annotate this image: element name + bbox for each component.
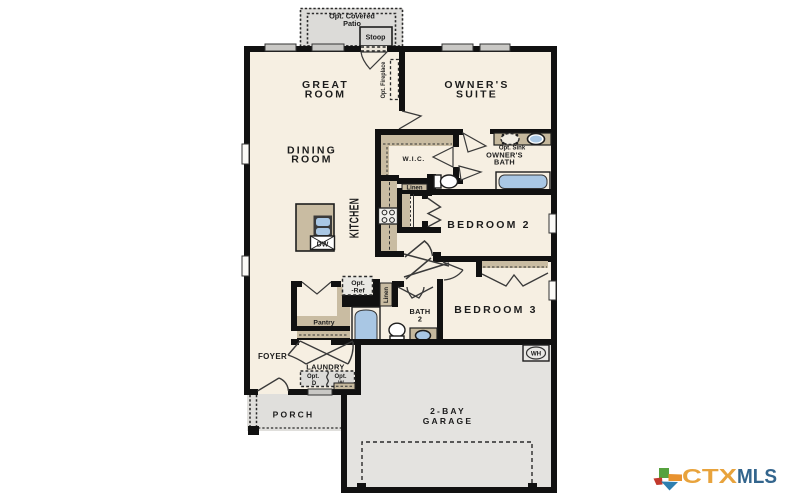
svg-text:GARAGE: GARAGE (423, 416, 474, 426)
svg-text:KITCHEN: KITCHEN (348, 198, 362, 238)
svg-text:W.I.C.: W.I.C. (403, 156, 426, 163)
svg-text:Opt.: Opt. (307, 374, 319, 380)
svg-text:ROOM: ROOM (291, 154, 332, 166)
svg-text:LAUNDRY: LAUNDRY (306, 363, 345, 372)
svg-text:2-BAY: 2-BAY (430, 406, 466, 416)
svg-text:SUITE: SUITE (456, 89, 498, 101)
svg-text:Opt.: Opt. (335, 374, 347, 380)
svg-text:Linen: Linen (384, 287, 390, 303)
svg-text:FOYER: FOYER (258, 352, 287, 361)
svg-text:Opt.: Opt. (351, 280, 365, 287)
svg-text:ROOM: ROOM (305, 89, 346, 101)
svg-text:CTX: CTX (682, 466, 738, 488)
svg-text:MLS: MLS (737, 466, 777, 488)
svg-text:PORCH: PORCH (273, 410, 315, 420)
svg-text:Opt. Fireplace: Opt. Fireplace (381, 62, 387, 99)
svg-text:2: 2 (418, 315, 422, 324)
svg-text:WH: WH (531, 351, 542, 358)
svg-text:Pantry: Pantry (313, 320, 334, 327)
svg-text:Patio: Patio (343, 19, 361, 28)
svg-text:BATH: BATH (494, 158, 515, 167)
svg-text:D: D (312, 381, 317, 387)
svg-text:Stoop: Stoop (366, 35, 386, 42)
svg-text:DW: DW (317, 242, 329, 249)
svg-text:-Ref: -Ref (351, 288, 365, 295)
svg-text:BEDROOM 3: BEDROOM 3 (454, 304, 537, 316)
svg-text:BEDROOM 2: BEDROOM 2 (447, 219, 530, 231)
